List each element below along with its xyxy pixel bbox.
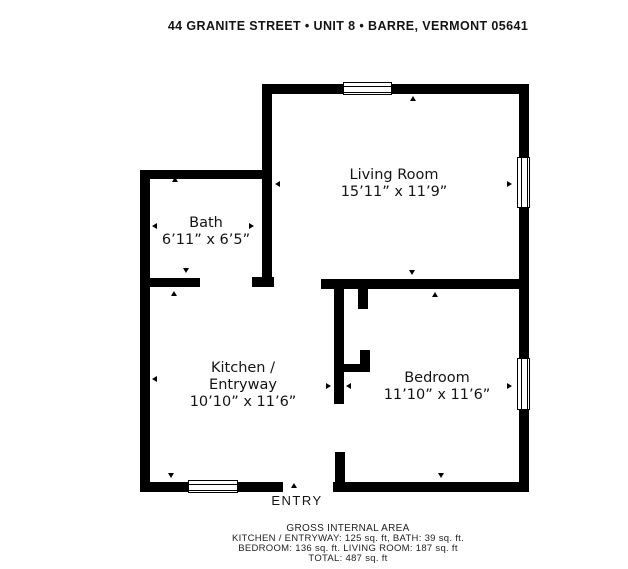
dim-arrow-kitchen-right-icon [326,383,331,389]
dim-arrow-living-up-icon [410,96,416,101]
floor-plan-page: 44 GRANITE STREET • UNIT 8 • BARRE, VERM… [0,0,628,569]
room-label-bedroom: Bedroom 11’10” x 11’6” [384,370,491,404]
dim-arrow-living-left-icon [275,181,280,187]
wall-bottom-right [333,482,529,492]
window-pane [188,484,238,491]
room-name: Living Room [341,167,448,184]
window-pane [343,86,392,93]
wall-closet-top-stub [358,289,368,309]
room-label-living-room: Living Room 15’11” x 11’9” [341,167,448,201]
dim-arrow-bedroom-up-icon [432,292,438,297]
wall-bedroom-entry-stub [335,452,345,482]
room-dimensions: 10’10” x 11’6” [190,394,297,411]
room-name: Bedroom [384,370,491,387]
room-label-kitchen-entryway: Kitchen / Entryway 10’10” x 11’6” [190,360,297,411]
dim-arrow-bedroom-right-icon [507,383,512,389]
dim-arrow-living-down-icon [409,270,415,275]
room-label-bath: Bath 6’11” x 6’5” [162,215,250,249]
window-living-top-icon [343,82,392,95]
window-bedroom-right-icon [517,358,530,410]
room-name: Bath [162,215,250,232]
dim-arrow-living-right-icon [507,181,512,187]
dim-arrow-bath-down-icon [183,268,189,273]
wall-bath-top [140,170,272,179]
wall-bath-bottom [150,278,200,287]
room-dimensions: 6’11” x 6’5” [162,232,250,249]
area-summary: GROSS INTERNAL AREA KITCHEN / ENTRYWAY: … [232,524,464,564]
dim-arrow-kitchen-up-icon [171,291,177,296]
wall-bath-right-foot [252,277,274,287]
room-dimensions: 11’10” x 11’6” [384,387,491,404]
room-dimensions: 15’11” x 11’9” [341,184,448,201]
window-pane [521,358,528,410]
wall-left-outer [140,170,150,492]
entry-label: ENTRY [271,493,322,508]
area-summary-line: TOTAL: 487 sq. ft [232,554,464,564]
wall-bath-right [262,84,272,277]
dim-arrow-bedroom-left-icon [346,383,351,389]
page-title: 44 GRANITE STREET • UNIT 8 • BARRE, VERM… [168,19,528,33]
room-name-line2: Entryway [190,377,297,394]
dim-arrow-bath-up-icon [172,177,178,182]
room-name: Kitchen / [190,360,297,377]
window-pane [521,157,528,208]
wall-closet-jamb-horizontal [334,364,370,372]
dim-arrow-kitchen-left-icon [152,376,157,382]
dim-arrow-kitchen-down-icon [168,473,174,478]
dim-arrow-bath-left-icon [152,223,157,229]
dim-arrow-bedroom-down-icon [438,473,444,478]
wall-living-bedroom-divider [321,279,529,289]
window-kitchen-bottom-icon [188,480,238,493]
wall-closet-left [334,289,344,404]
window-living-right-icon [517,157,530,208]
dim-arrow-entry-up-icon [291,483,297,488]
wall-top-outer [263,84,529,94]
